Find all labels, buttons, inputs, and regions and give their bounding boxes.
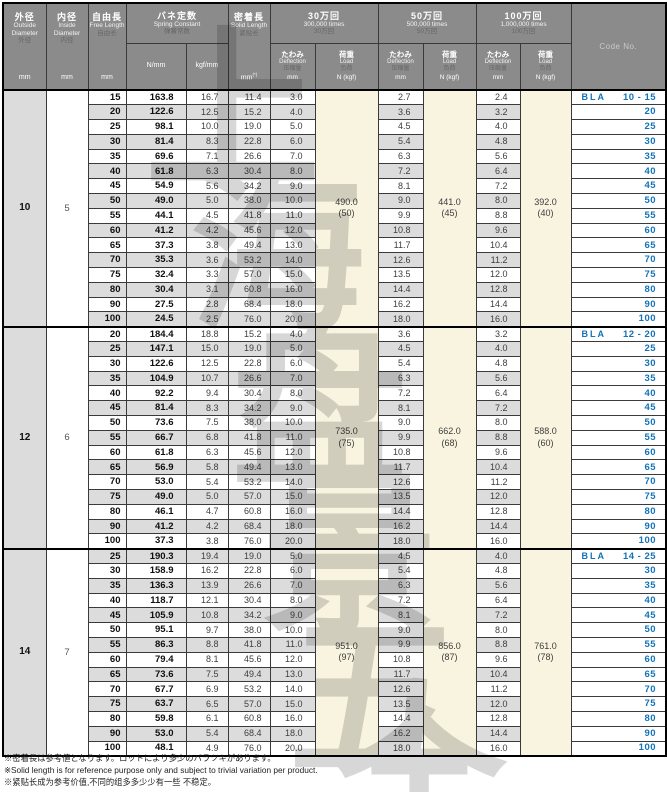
deflection-1m-cell: 5.6: [476, 578, 520, 593]
deflection-500k-cell: 12.6: [378, 682, 423, 697]
spring-constant-n-cell: 86.3: [126, 637, 186, 652]
spring-constant-n-cell: 118.7: [126, 593, 186, 608]
header-ja-label: 内径: [57, 12, 77, 22]
deflection-300k-cell: 10.0: [270, 623, 315, 638]
deflection-500k-cell: 7.2: [378, 164, 423, 179]
free-length-cell: 90: [88, 726, 126, 741]
code-value: 65: [644, 463, 656, 473]
spring-constant-n-cell: 44.1: [126, 208, 186, 223]
free-length-cell: 50: [88, 623, 126, 638]
spring-constant-n-cell: 190.3: [126, 549, 186, 564]
code-cell: 30: [571, 356, 666, 371]
spring-constant-kgf-cell: 15.0: [186, 342, 228, 357]
spring-constant-n-cell: 104.9: [126, 371, 186, 386]
header-ja-label: 外径: [15, 12, 35, 22]
code-cell: 35: [571, 578, 666, 593]
code-cell: 40: [571, 386, 666, 401]
free-length-cell: 30: [88, 356, 126, 371]
outside-diameter-cell: 10: [3, 90, 46, 327]
deflection-300k-cell: 7.0: [270, 578, 315, 593]
deflection-300k-cell: 15.0: [270, 697, 315, 712]
code-cell: 65: [571, 460, 666, 475]
header-ja-label: 荷重: [442, 51, 457, 60]
spring-constant-n-cell: 41.2: [126, 519, 186, 534]
spring-constant-n-cell: 30.4: [126, 282, 186, 297]
col-header-cycles-500k: 50万回 500,000 times 50万回: [378, 3, 476, 43]
deflection-300k-cell: 4.0: [270, 105, 315, 120]
free-length-cell: 50: [88, 194, 126, 209]
deflection-500k-cell: 6.3: [378, 371, 423, 386]
col-header-kgf-per-mm: kgf/mm: [186, 43, 228, 90]
solid-length-cell: 41.8: [228, 637, 270, 652]
code-cell: 90: [571, 726, 666, 741]
spring-constant-kgf-cell: 10.7: [186, 371, 228, 386]
size-group-od-10: 10515163.816.711.43.0490.0(50)2.7441.0(4…: [3, 90, 666, 327]
deflection-500k-cell: 7.2: [378, 386, 423, 401]
load-500k-cell: 662.0(68): [423, 327, 476, 549]
code-cell: 100: [571, 534, 666, 549]
deflection-300k-cell: 14.0: [270, 682, 315, 697]
solid-length-cell: 76.0: [228, 534, 270, 549]
spec-row: 12620184.418.815.24.0735.0(75)3.6662.0(6…: [3, 327, 666, 342]
deflection-1m-cell: 4.8: [476, 356, 520, 371]
header-zh-label: 压缩量: [283, 66, 301, 73]
spring-constant-n-cell: 122.6: [126, 105, 186, 120]
code-value: 75: [644, 492, 656, 502]
free-length-cell: 90: [88, 519, 126, 534]
deflection-500k-cell: 2.7: [378, 90, 423, 105]
code-value: 50: [644, 196, 656, 206]
spring-constant-n-cell: 49.0: [126, 490, 186, 505]
deflection-1m-cell: 12.0: [476, 268, 520, 283]
deflection-300k-cell: 20.0: [270, 534, 315, 549]
solid-length-cell: 53.2: [228, 253, 270, 268]
solid-length-cell: 30.4: [228, 164, 270, 179]
deflection-1m-cell: 9.6: [476, 223, 520, 238]
deflection-300k-cell: 20.0: [270, 312, 315, 327]
code-cell: 75: [571, 697, 666, 712]
code-cell: 35: [571, 371, 666, 386]
deflection-1m-cell: 12.0: [476, 697, 520, 712]
code-value: 25: [644, 122, 656, 132]
deflection-300k-cell: 3.0: [270, 90, 315, 105]
free-length-cell: 65: [88, 238, 126, 253]
spring-constant-kgf-cell: 5.0: [186, 194, 228, 209]
spring-constant-n-cell: 37.3: [126, 534, 186, 549]
solid-length-cell: 57.0: [228, 268, 270, 283]
deflection-1m-cell: 8.0: [476, 416, 520, 431]
deflection-500k-cell: 5.4: [378, 134, 423, 149]
deflection-1m-cell: 4.8: [476, 564, 520, 579]
free-length-cell: 65: [88, 460, 126, 475]
code-value: 12 - 20: [623, 330, 656, 340]
deflection-300k-cell: 18.0: [270, 726, 315, 741]
code-value: 100: [639, 536, 656, 546]
header-en-label: Inside Diameter: [47, 22, 88, 37]
solid-length-cell: 30.4: [228, 593, 270, 608]
deflection-1m-cell: 16.0: [476, 534, 520, 549]
code-value: 55: [644, 640, 656, 650]
deflection-1m-cell: 10.4: [476, 460, 520, 475]
header-ja-label: たわみ: [281, 51, 304, 60]
code-cell: 55: [571, 430, 666, 445]
spring-constant-n-cell: 37.3: [126, 238, 186, 253]
free-length-cell: 55: [88, 430, 126, 445]
deflection-500k-cell: 9.9: [378, 430, 423, 445]
solid-length-cell: 45.6: [228, 223, 270, 238]
free-length-cell: 75: [88, 697, 126, 712]
deflection-500k-cell: 4.5: [378, 120, 423, 135]
solid-length-cell: 68.4: [228, 726, 270, 741]
deflection-300k-cell: 15.0: [270, 268, 315, 283]
deflection-300k-cell: 11.0: [270, 637, 315, 652]
deflection-300k-cell: 12.0: [270, 223, 315, 238]
free-length-cell: 55: [88, 208, 126, 223]
deflection-1m-cell: 6.4: [476, 386, 520, 401]
header-zh-label: 弹簧常数: [164, 28, 190, 35]
spring-constant-kgf-cell: 8.8: [186, 637, 228, 652]
free-length-cell: 35: [88, 149, 126, 164]
deflection-300k-cell: 16.0: [270, 282, 315, 297]
spring-constant-n-cell: 41.2: [126, 223, 186, 238]
code-value: 60: [644, 448, 656, 458]
spring-constant-kgf-cell: 12.1: [186, 593, 228, 608]
deflection-1m-cell: 4.0: [476, 120, 520, 135]
solid-length-cell: 68.4: [228, 297, 270, 312]
deflection-1m-cell: 14.4: [476, 297, 520, 312]
header-zh-label: 内径: [61, 37, 74, 44]
solid-length-cell: 34.2: [228, 608, 270, 623]
solid-length-cell: 19.0: [228, 549, 270, 564]
solid-length-cell: 15.2: [228, 327, 270, 342]
col-header-n-per-mm: N/mm: [126, 43, 186, 90]
free-length-cell: 70: [88, 682, 126, 697]
code-value: 90: [644, 522, 656, 532]
spec-row: 14725190.319.419.05.0951.0(97)4.5856.0(8…: [3, 549, 666, 564]
spring-constant-kgf-cell: 4.5: [186, 208, 228, 223]
code-cell: 80: [571, 504, 666, 519]
code-cell: 60: [571, 223, 666, 238]
spring-constant-kgf-cell: 5.4: [186, 726, 228, 741]
spring-constant-n-cell: 98.1: [126, 120, 186, 135]
spring-constant-n-cell: 66.7: [126, 430, 186, 445]
code-cell: 50: [571, 623, 666, 638]
deflection-500k-cell: 14.4: [378, 282, 423, 297]
deflection-500k-cell: 9.9: [378, 208, 423, 223]
deflection-300k-cell: 16.0: [270, 504, 315, 519]
deflection-1m-cell: 11.2: [476, 475, 520, 490]
spring-constant-n-cell: 63.7: [126, 697, 186, 712]
deflection-1m-cell: 11.2: [476, 682, 520, 697]
code-cell: 70: [571, 682, 666, 697]
deflection-1m-cell: 5.6: [476, 371, 520, 386]
code-value: 30: [644, 137, 656, 147]
deflection-300k-cell: 18.0: [270, 519, 315, 534]
col-header-deflection-500k: たわみ Deflection 压缩量 mm: [378, 43, 423, 90]
deflection-300k-cell: 14.0: [270, 253, 315, 268]
code-cell: 30: [571, 134, 666, 149]
deflection-500k-cell: 4.5: [378, 342, 423, 357]
header-zh-label: 30万回: [314, 28, 334, 35]
code-cell: 60: [571, 445, 666, 460]
free-length-cell: 40: [88, 164, 126, 179]
deflection-500k-cell: 14.4: [378, 711, 423, 726]
deflection-1m-cell: 7.2: [476, 608, 520, 623]
spring-spec-table: 外径 Outside Diameter 外径 mm 内径 Inside Diam…: [2, 2, 667, 757]
spring-constant-n-cell: 69.6: [126, 149, 186, 164]
code-value: 40: [644, 596, 656, 606]
code-cell: 60: [571, 652, 666, 667]
deflection-300k-cell: 18.0: [270, 297, 315, 312]
spring-constant-kgf-cell: 6.9: [186, 682, 228, 697]
spring-constant-kgf-cell: 6.8: [186, 430, 228, 445]
code-cell: 65: [571, 667, 666, 682]
deflection-1m-cell: 7.2: [476, 179, 520, 194]
col-header-outside-diameter: 外径 Outside Diameter 外径 mm: [3, 3, 46, 90]
code-value: 55: [644, 211, 656, 221]
header-zh-label: 100万回: [512, 28, 536, 35]
solid-length-cell: 34.2: [228, 401, 270, 416]
solid-length-cell: 49.4: [228, 238, 270, 253]
deflection-1m-cell: 6.4: [476, 164, 520, 179]
header-unit-label: N (kgf): [440, 74, 460, 81]
free-length-cell: 70: [88, 253, 126, 268]
free-length-cell: 20: [88, 327, 126, 342]
code-cell: 90: [571, 519, 666, 534]
header-zh-label: 外径: [18, 37, 31, 44]
deflection-300k-cell: 13.0: [270, 667, 315, 682]
deflection-300k-cell: 13.0: [270, 460, 315, 475]
solid-length-cell: 60.8: [228, 282, 270, 297]
solid-length-cell: 57.0: [228, 697, 270, 712]
free-length-cell: 60: [88, 652, 126, 667]
spring-constant-n-cell: 158.9: [126, 564, 186, 579]
deflection-500k-cell: 9.0: [378, 416, 423, 431]
code-value: 75: [644, 699, 656, 709]
spring-constant-kgf-cell: 4.2: [186, 223, 228, 238]
deflection-300k-cell: 10.0: [270, 416, 315, 431]
code-value: 20: [644, 107, 656, 117]
header-ja-label: 荷重: [538, 51, 553, 60]
code-value: 30: [644, 566, 656, 576]
spring-constant-kgf-cell: 3.1: [186, 282, 228, 297]
deflection-500k-cell: 13.5: [378, 697, 423, 712]
deflection-300k-cell: 5.0: [270, 120, 315, 135]
free-length-cell: 80: [88, 504, 126, 519]
code-cell: 80: [571, 711, 666, 726]
code-value: 50: [644, 625, 656, 635]
col-header-load-300k: 荷重 Load 负荷 N (kgf): [315, 43, 378, 90]
header-zh-label: 压缩量: [489, 66, 507, 73]
deflection-300k-cell: 11.0: [270, 208, 315, 223]
deflection-500k-cell: 16.2: [378, 726, 423, 741]
free-length-cell: 60: [88, 223, 126, 238]
deflection-500k-cell: 10.8: [378, 652, 423, 667]
deflection-300k-cell: 14.0: [270, 475, 315, 490]
deflection-300k-cell: 16.0: [270, 711, 315, 726]
code-cell: 65: [571, 238, 666, 253]
spring-constant-n-cell: 46.1: [126, 504, 186, 519]
deflection-300k-cell: 5.0: [270, 342, 315, 357]
solid-length-cell: 19.0: [228, 120, 270, 135]
deflection-1m-cell: 10.4: [476, 667, 520, 682]
deflection-500k-cell: 16.2: [378, 519, 423, 534]
spring-constant-n-cell: 54.9: [126, 179, 186, 194]
spring-constant-kgf-cell: 16.2: [186, 564, 228, 579]
header-zh-label: 负荷: [443, 66, 455, 73]
solid-length-cell: 57.0: [228, 490, 270, 505]
free-length-cell: 30: [88, 134, 126, 149]
spring-constant-n-cell: 53.0: [126, 726, 186, 741]
catalog-page: 外径 Outside Diameter 外径 mm 内径 Inside Diam…: [0, 0, 667, 792]
code-cell: 90: [571, 297, 666, 312]
header-ja-label: 50万回: [411, 11, 443, 21]
col-header-solid-length: 密着長 Solid Length 紧贴长 mm(*): [228, 3, 270, 90]
code-prefix: BLA: [582, 330, 607, 339]
code-cell: 45: [571, 401, 666, 416]
deflection-500k-cell: 9.9: [378, 637, 423, 652]
code-value: 90: [644, 729, 656, 739]
code-value: 35: [644, 581, 656, 591]
header-ja-label: バネ定数: [157, 11, 197, 21]
spring-constant-kgf-cell: 5.0: [186, 490, 228, 505]
footnote-en: ※Solid length is for reference purpose o…: [4, 764, 564, 776]
deflection-1m-cell: 11.2: [476, 253, 520, 268]
deflection-1m-cell: 8.0: [476, 194, 520, 209]
header-unit-label: mm: [61, 74, 73, 82]
col-header-load-500k: 荷重 Load 负荷 N (kgf): [423, 43, 476, 90]
deflection-500k-cell: 14.4: [378, 504, 423, 519]
spring-constant-n-cell: 61.8: [126, 445, 186, 460]
load-300k-cell: 735.0(75): [315, 327, 378, 549]
deflection-500k-cell: 3.6: [378, 105, 423, 120]
code-value: 80: [644, 714, 656, 724]
load-300k-cell: 490.0(50): [315, 90, 378, 327]
deflection-300k-cell: 11.0: [270, 430, 315, 445]
inside-diameter-cell: 6: [46, 327, 88, 549]
deflection-1m-cell: 8.8: [476, 430, 520, 445]
free-length-cell: 25: [88, 342, 126, 357]
header-zh-label: 负荷: [340, 66, 352, 73]
code-value: 45: [644, 181, 656, 191]
code-cell: 30: [571, 564, 666, 579]
spring-constant-kgf-cell: 10.8: [186, 608, 228, 623]
deflection-1m-cell: 14.4: [476, 519, 520, 534]
spring-constant-kgf-cell: 16.7: [186, 90, 228, 105]
load-1m-cell: 761.0(78): [520, 549, 571, 756]
spring-constant-kgf-cell: 13.9: [186, 578, 228, 593]
spring-constant-n-cell: 81.4: [126, 401, 186, 416]
deflection-500k-cell: 6.3: [378, 578, 423, 593]
spring-constant-n-cell: 81.4: [126, 134, 186, 149]
code-cell: 20: [571, 105, 666, 120]
solid-length-cell: 22.8: [228, 564, 270, 579]
spring-constant-kgf-cell: 2.8: [186, 297, 228, 312]
spring-constant-n-cell: 59.8: [126, 711, 186, 726]
deflection-1m-cell: 9.6: [476, 652, 520, 667]
spring-constant-kgf-cell: 18.8: [186, 327, 228, 342]
header-unit-label: mm: [19, 74, 31, 82]
free-length-cell: 55: [88, 637, 126, 652]
load-1m-cell: 392.0(40): [520, 90, 571, 327]
deflection-500k-cell: 13.5: [378, 490, 423, 505]
spring-constant-kgf-cell: 12.5: [186, 105, 228, 120]
code-cell: BLA10 - 15: [571, 90, 666, 105]
code-cell: 25: [571, 342, 666, 357]
deflection-500k-cell: 13.5: [378, 268, 423, 283]
header-en-label: Outside Diameter: [4, 22, 46, 37]
deflection-500k-cell: 12.6: [378, 253, 423, 268]
code-cell: BLA12 - 20: [571, 327, 666, 342]
free-length-cell: 80: [88, 711, 126, 726]
solid-length-cell: 45.6: [228, 445, 270, 460]
code-cell: 50: [571, 416, 666, 431]
header-ja-label: 30万回: [308, 11, 340, 21]
col-header-free-length: 自由長 Free Length 自由长 mm: [88, 3, 126, 90]
deflection-300k-cell: 8.0: [270, 164, 315, 179]
deflection-1m-cell: 9.6: [476, 445, 520, 460]
solid-length-cell: 68.4: [228, 519, 270, 534]
deflection-500k-cell: 5.4: [378, 356, 423, 371]
deflection-1m-cell: 3.2: [476, 105, 520, 120]
deflection-1m-cell: 7.2: [476, 401, 520, 416]
free-length-cell: 45: [88, 179, 126, 194]
solid-length-cell: 34.2: [228, 179, 270, 194]
spring-constant-kgf-cell: 8.1: [186, 652, 228, 667]
free-length-cell: 20: [88, 105, 126, 120]
solid-length-cell: 22.8: [228, 356, 270, 371]
code-cell: 100: [571, 741, 666, 756]
deflection-300k-cell: 5.0: [270, 549, 315, 564]
deflection-500k-cell: 10.8: [378, 223, 423, 238]
spring-constant-kgf-cell: 8.3: [186, 401, 228, 416]
footnotes: ※密着長は参考値となります。ロットにより多少のバラツキがあります。 ※Solid…: [4, 752, 564, 788]
spring-constant-n-cell: 73.6: [126, 667, 186, 682]
spring-constant-kgf-cell: 5.6: [186, 179, 228, 194]
code-value: 14 - 25: [623, 552, 656, 562]
code-cell: 40: [571, 593, 666, 608]
col-header-code-no: Code No.: [571, 3, 666, 90]
spring-constant-n-cell: 61.8: [126, 164, 186, 179]
deflection-1m-cell: 2.4: [476, 90, 520, 105]
col-header-spring-constant: バネ定数 Spring Constant 弹簧常数: [126, 3, 228, 43]
solid-length-cell: 15.2: [228, 105, 270, 120]
deflection-300k-cell: 8.0: [270, 386, 315, 401]
solid-length-cell: 41.8: [228, 208, 270, 223]
deflection-500k-cell: 18.0: [378, 534, 423, 549]
header-unit-label: mm: [395, 74, 406, 81]
deflection-1m-cell: 12.8: [476, 711, 520, 726]
code-value: 50: [644, 418, 656, 428]
deflection-300k-cell: 7.0: [270, 371, 315, 386]
header-unit-label: mm(*): [241, 72, 257, 82]
spring-constant-kgf-cell: 4.7: [186, 504, 228, 519]
code-value: 65: [644, 670, 656, 680]
deflection-500k-cell: 8.1: [378, 401, 423, 416]
header-ja-label: 密着長: [234, 12, 264, 22]
spring-constant-kgf-cell: 7.5: [186, 416, 228, 431]
load-1m-cell: 588.0(60): [520, 327, 571, 549]
code-value: 30: [644, 359, 656, 369]
code-value: 100: [639, 743, 656, 753]
solid-length-cell: 38.0: [228, 416, 270, 431]
size-group-od-14: 14725190.319.419.05.0951.0(97)4.5856.0(8…: [3, 549, 666, 756]
code-cell: 40: [571, 164, 666, 179]
deflection-300k-cell: 13.0: [270, 238, 315, 253]
outside-diameter-cell: 14: [3, 549, 46, 756]
code-value: 80: [644, 285, 656, 295]
spring-constant-n-cell: 79.4: [126, 652, 186, 667]
